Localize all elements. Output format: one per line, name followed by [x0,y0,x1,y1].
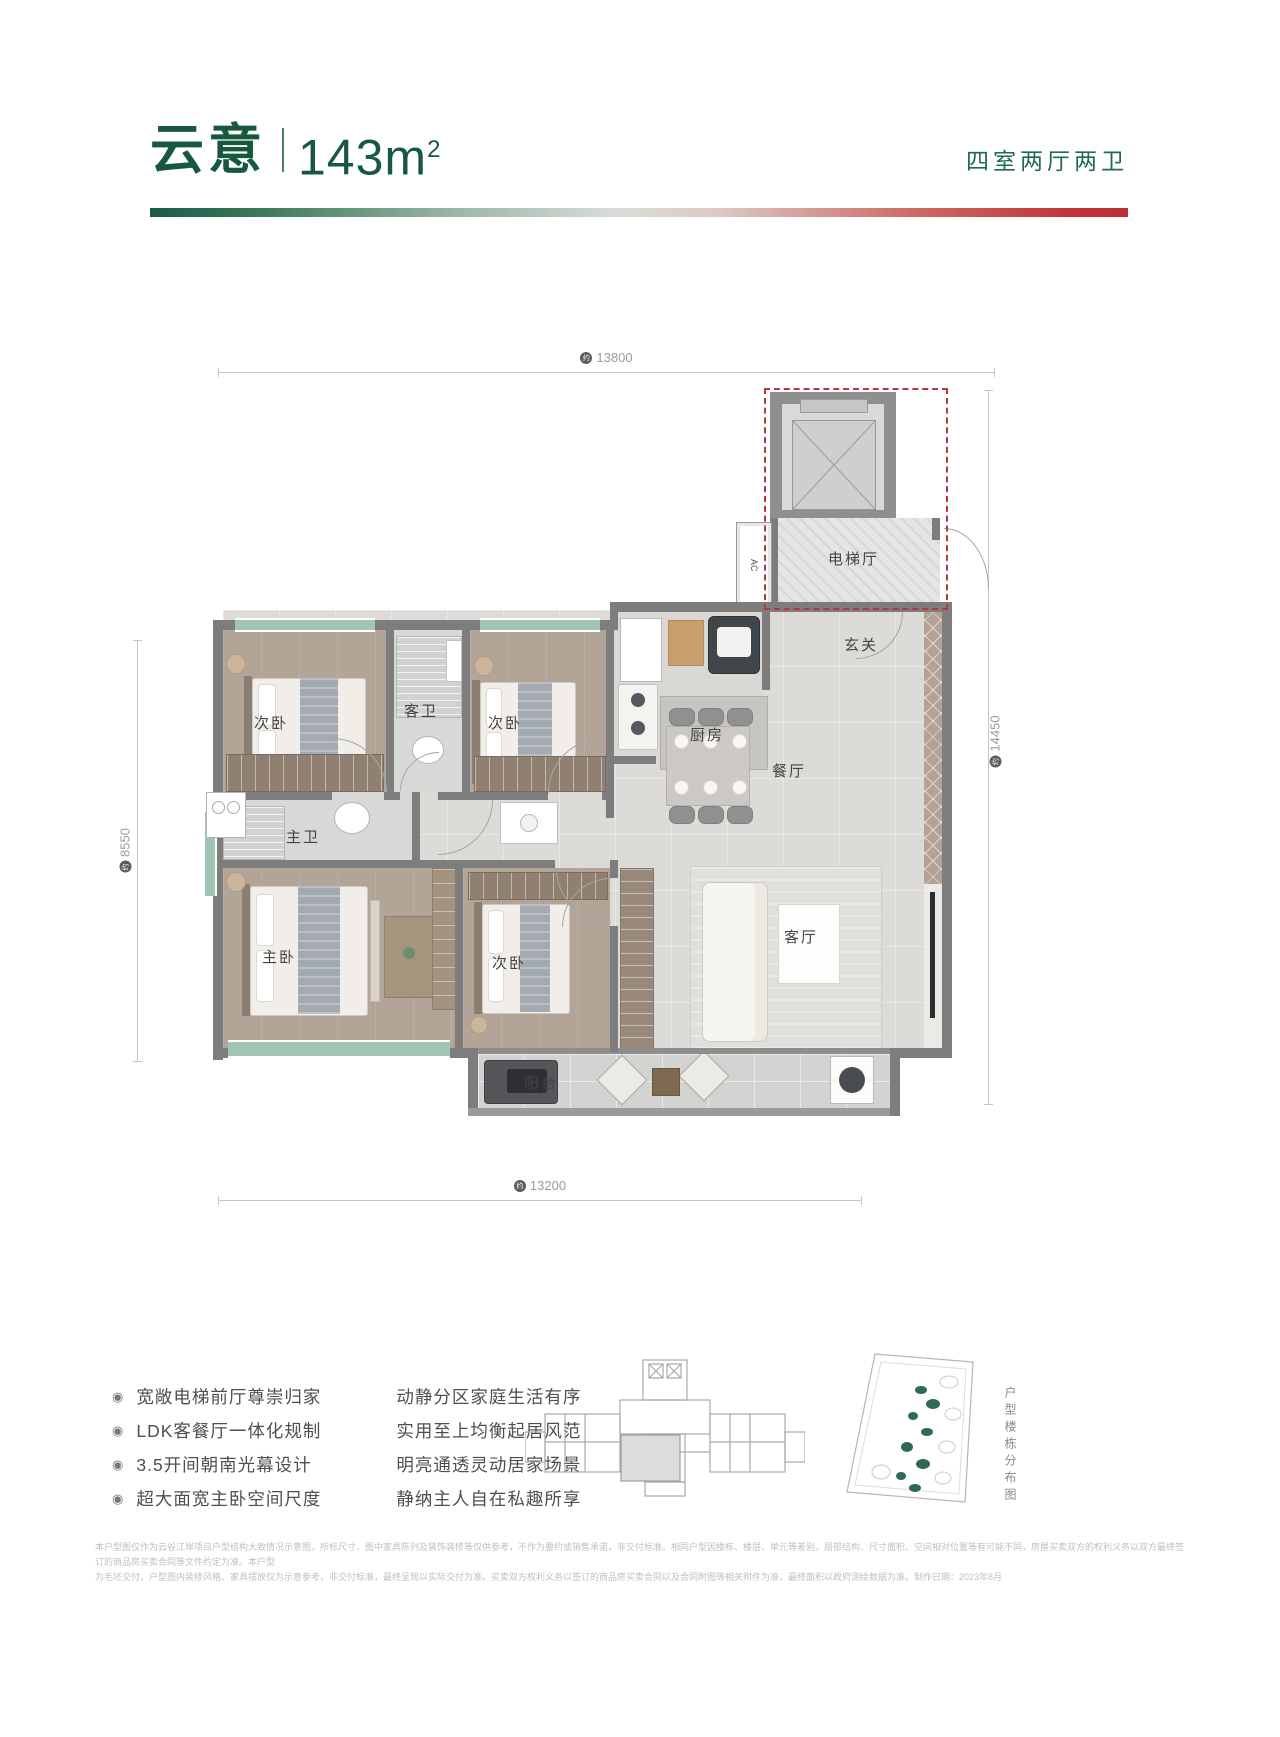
spec-label: 四室两厅两卫 [966,142,1128,176]
washer-niche [206,792,246,838]
approx-icon: 约 [580,352,592,364]
desk-master [384,916,436,998]
room-label-living: 客厅 [784,926,818,947]
vanity [500,802,558,844]
sofa [702,882,768,1042]
wall [762,602,770,690]
dining-chair [698,806,724,824]
headboard [242,884,250,1016]
wall [412,792,420,868]
room-label-master-bath: 主卫 [286,826,320,847]
plant-icon [403,947,415,959]
wall [942,602,952,1058]
features-list: ◉ 宽敞电梯前厅尊崇归家 动静分区家庭生活有序 ◉ LDK客餐厅一体化规制 实用… [112,1384,581,1511]
feature-left: 超大面宽主卧空间尺度 [136,1486,382,1511]
dim-label-top: 约 13800 [218,350,995,365]
washer-icon [227,801,240,814]
dining-chair [727,806,753,824]
bullet-icon: ◉ [112,1424,124,1437]
wall [384,792,400,800]
room-label-kitchen: 厨房 [690,724,724,745]
dim-line-top [218,372,995,373]
feature-row: ◉ 宽敞电梯前厅尊崇归家 动静分区家庭生活有序 [112,1384,581,1409]
washer-icon [212,801,225,814]
nightstand [474,656,494,676]
ac-label: AC [749,559,759,572]
dining-chair [669,806,695,824]
disclaimer-line1: 本户型图仅作为云谷江岸项目户型结构大致情况示意图，所标尺寸、图中家具陈列及装饰装… [95,1540,1190,1570]
window-strip [480,618,600,632]
washing-machine [830,1056,874,1104]
nightstand [470,1016,488,1034]
room-label-elevator-hall: 电梯厅 [828,548,879,569]
approx-icon: 约 [119,861,131,873]
disclaimer-line2: 为毛坯交付，户型图内装修风格、家具摆放仅为示意参考，非交付标准，最终呈现以实际交… [95,1570,1190,1585]
wall [606,620,614,818]
disclaimer: 本户型图仅作为云谷江岸项目户型结构大致情况示意图，所标尺寸、图中家具陈列及装饰装… [95,1540,1190,1585]
nightstand [226,872,246,892]
feature-left: LDK客餐厅一体化规制 [136,1418,382,1443]
plate [674,734,689,749]
plate [703,780,718,795]
wall [213,860,555,868]
sink-basin [717,627,751,657]
sliding-window [478,1048,890,1054]
room-label-dining: 餐厅 [772,760,806,781]
stove-burner [631,693,645,707]
plan-name: 云意 [150,118,266,182]
kitchen-sink [708,616,760,674]
elevator-unit-outline [764,388,948,610]
plan-area: 143m2 [298,118,441,190]
cutting-board [668,620,704,666]
bullet-icon: ◉ [112,1390,124,1403]
plate [674,780,689,795]
title-divider [282,128,284,172]
dim-line-bottom [218,1200,862,1201]
wall [610,926,618,1052]
nightstand [226,654,246,674]
vanity-basin [520,814,538,832]
dim-label-bottom: 约 13200 [218,1178,862,1193]
area-superscript: 2 [427,136,441,163]
pillow [256,894,274,946]
wall [890,1048,952,1058]
dim-line-left [137,640,138,1062]
bullet-icon: ◉ [112,1492,124,1505]
gradient-bar [150,208,1128,217]
dim-label-right: 约 14450 [988,697,1003,787]
wall [438,792,548,800]
wall [602,792,614,800]
toilet-master [334,802,370,834]
map-caption: 户型楼栋分布图 [1002,1386,1019,1516]
page-title: 云意 143m2 [150,118,441,190]
bullet-icon: ◉ [112,1458,124,1471]
dining-chair [727,708,753,726]
kitchen-fridge [620,618,662,682]
building-diagram [525,1352,805,1502]
site-plan-diagram [845,1352,975,1507]
floorplan-poster: 云意 143m2 四室两厅两卫 约 13800 约 14450 约 8550 约… [0,0,1280,1737]
washer-drum [839,1067,865,1093]
room-label-bedroom-c: 次卧 [492,952,526,973]
feature-row: ◉ 超大面宽主卧空间尺度 静纳主人自在私趣所享 [112,1486,581,1511]
pillow [488,910,504,954]
room-label-bedroom-b: 次卧 [488,712,522,733]
wall [890,1048,900,1116]
feature-left: 宽敞电梯前厅尊崇归家 [136,1384,382,1409]
window-strip [235,618,375,632]
feature-row: ◉ 3.5开间朝南光幕设计 明亮通透灵动居家场景 [112,1452,581,1477]
wall [468,1048,478,1116]
stove-burner [631,721,645,735]
bed-bench [370,900,380,1002]
room-label-entry: 玄关 [844,634,878,655]
door-arc [944,528,989,589]
room-label-master-bedroom: 主卧 [262,946,296,967]
approx-icon: 约 [989,756,1001,768]
room-label-guest-bath: 客卫 [404,700,438,721]
wall [462,620,470,800]
wall [610,860,618,868]
feature-row: ◉ LDK客餐厅一体化规制 实用至上均衡起居风范 [112,1418,581,1443]
bay-window [228,1040,450,1058]
room-label-bedroom-a: 次卧 [254,712,288,733]
room-label-balcony: 阳台 [524,1072,558,1093]
wall [455,868,463,1052]
feature-left: 3.5开间朝南光幕设计 [136,1452,382,1477]
plate [732,734,747,749]
shoe-cabinet [924,612,942,884]
plate [732,780,747,795]
wall [610,756,656,764]
kitchen-stove [618,684,658,750]
bookshelf [620,868,654,1050]
sink-guest [446,640,462,682]
wall [386,620,394,800]
tv-panel [930,892,935,1018]
dim-label-left: 约 8550 [118,811,133,891]
wall [610,868,618,878]
headboard [474,902,482,1014]
balcony-railing [468,1108,900,1116]
blanket [298,886,340,1014]
approx-icon: 约 [514,1180,526,1192]
balcony-table [652,1068,680,1096]
